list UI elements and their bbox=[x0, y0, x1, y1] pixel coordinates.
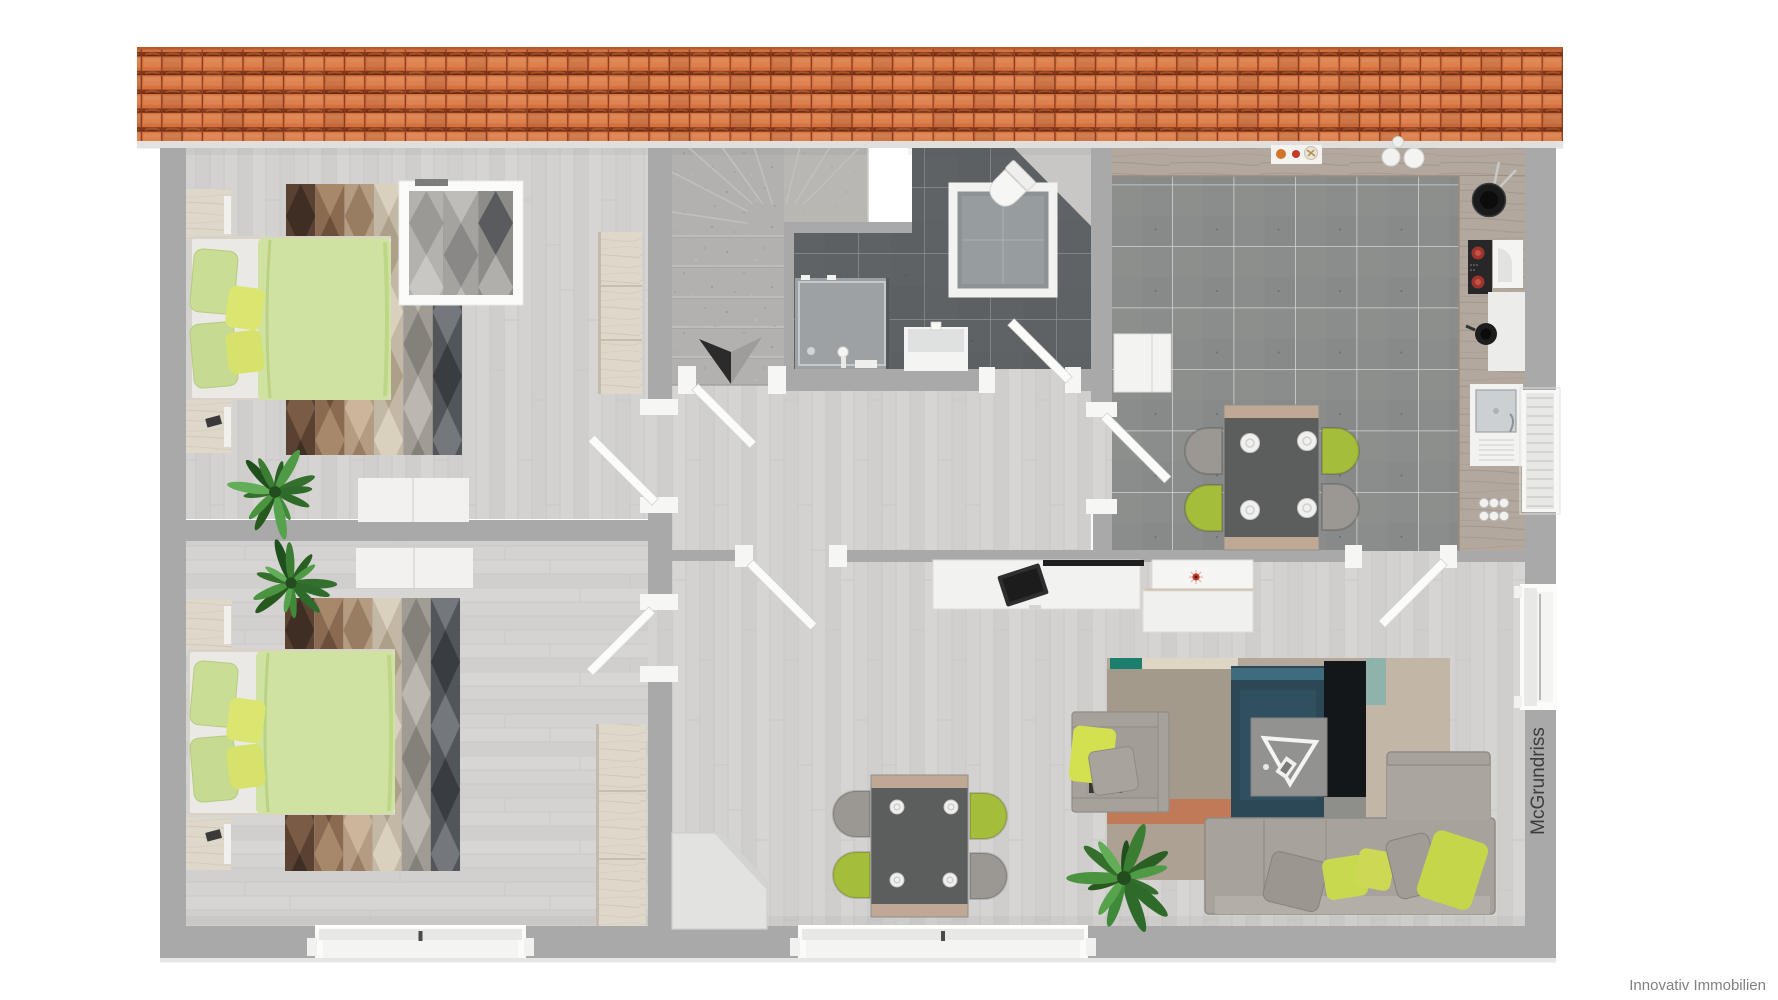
svg-text:Innovativ Immobilien: Innovativ Immobilien bbox=[1629, 977, 1766, 994]
svg-text:McGrundriss: McGrundriss bbox=[1528, 727, 1549, 835]
